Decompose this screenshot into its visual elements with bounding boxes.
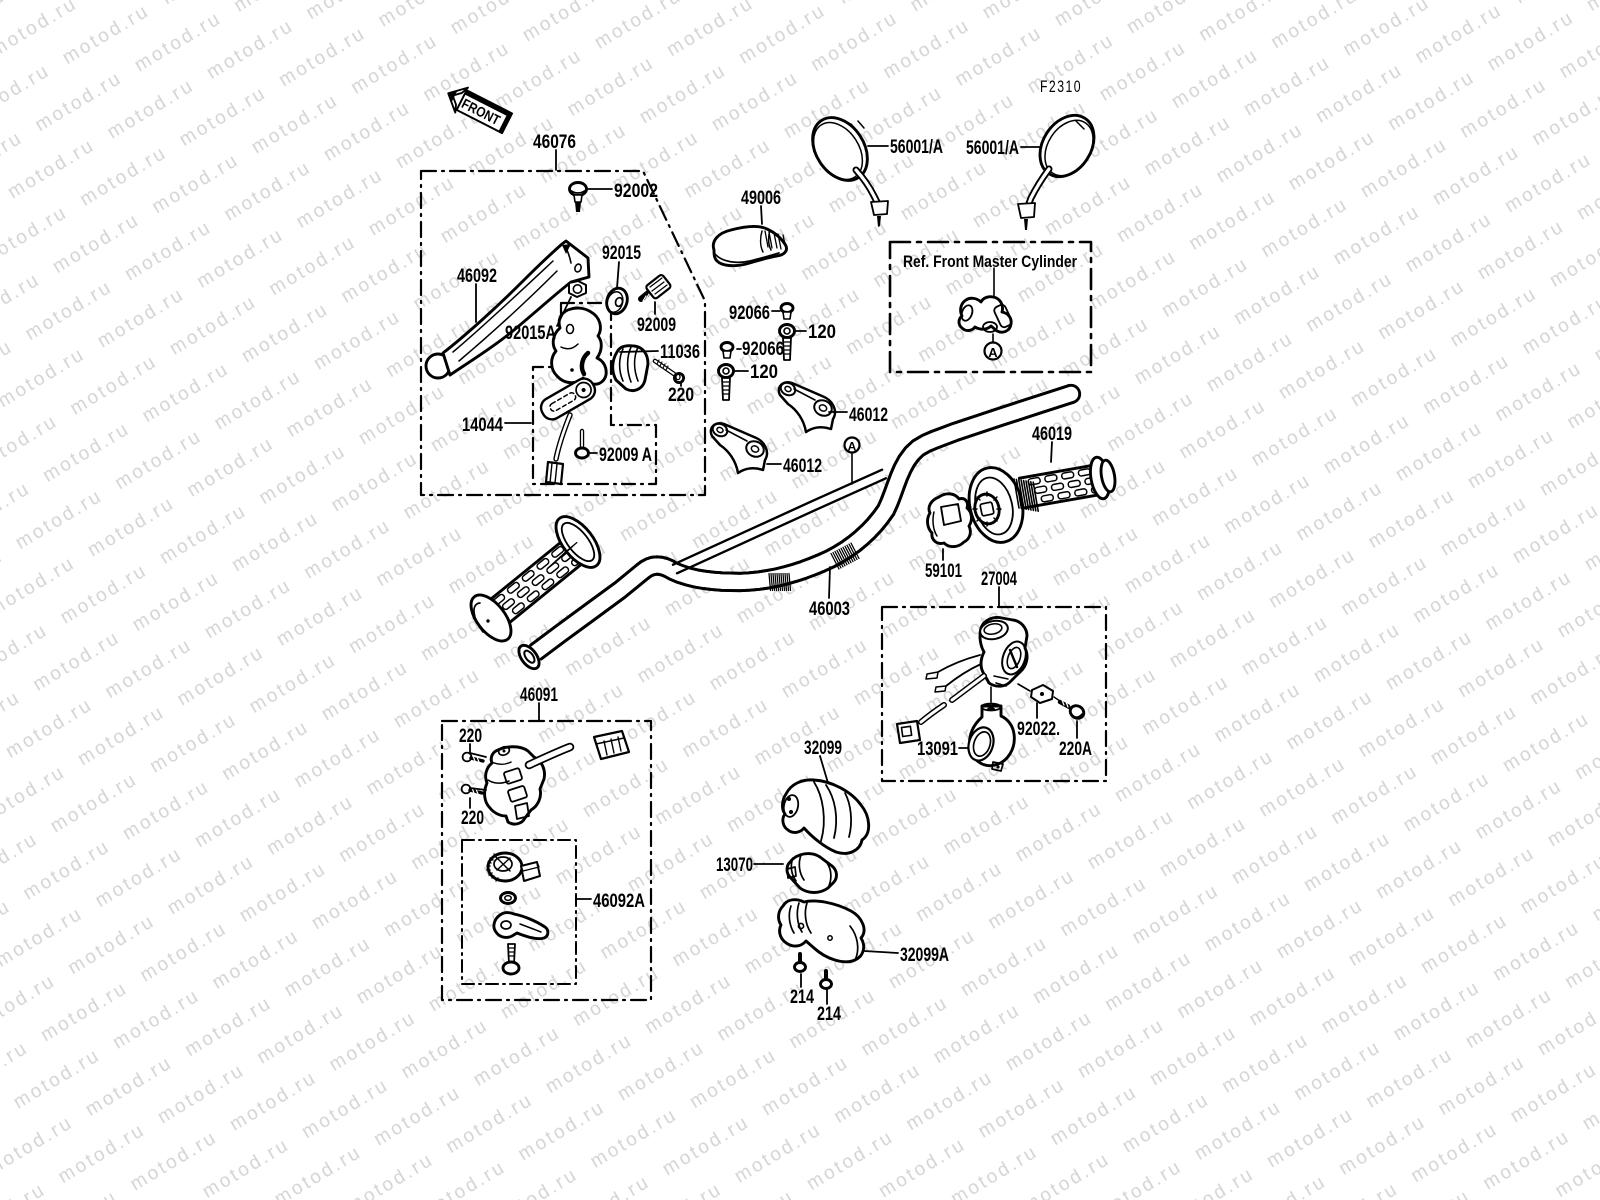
svg-text:14044: 14044 bbox=[462, 415, 503, 436]
svg-text:56001/A: 56001/A bbox=[890, 137, 943, 158]
svg-text:49006: 49006 bbox=[741, 188, 781, 209]
svg-text:214: 214 bbox=[817, 1004, 841, 1025]
svg-text:46092: 46092 bbox=[457, 266, 497, 287]
svg-text:46019: 46019 bbox=[1032, 424, 1072, 445]
svg-text:92009 A: 92009 A bbox=[599, 445, 652, 466]
svg-text:F2310: F2310 bbox=[1040, 77, 1082, 96]
svg-text:220A: 220A bbox=[1059, 739, 1092, 760]
svg-text:92066: 92066 bbox=[729, 303, 770, 324]
svg-text:214: 214 bbox=[790, 987, 814, 1008]
svg-text:46091: 46091 bbox=[520, 685, 558, 706]
svg-text:11036: 11036 bbox=[660, 342, 700, 363]
svg-text:46012: 46012 bbox=[783, 456, 822, 477]
svg-text:220: 220 bbox=[668, 385, 694, 406]
svg-text:120: 120 bbox=[808, 322, 836, 343]
svg-text:13091: 13091 bbox=[917, 739, 958, 760]
svg-text:220: 220 bbox=[459, 726, 482, 747]
svg-text:A: A bbox=[988, 345, 998, 360]
svg-text:56001/A: 56001/A bbox=[966, 138, 1019, 159]
svg-text:46092A: 46092A bbox=[593, 891, 645, 912]
svg-text:120: 120 bbox=[750, 362, 778, 383]
svg-text:27004: 27004 bbox=[981, 569, 1017, 590]
svg-text:32099: 32099 bbox=[804, 738, 842, 759]
svg-text:92002: 92002 bbox=[614, 181, 658, 202]
svg-text:92015: 92015 bbox=[602, 243, 641, 264]
svg-text:46076: 46076 bbox=[533, 132, 576, 153]
svg-text:46003: 46003 bbox=[809, 599, 850, 620]
svg-text:92015A: 92015A bbox=[505, 323, 556, 344]
svg-text:46012: 46012 bbox=[849, 405, 888, 426]
svg-text:220: 220 bbox=[461, 808, 484, 829]
svg-text:92066: 92066 bbox=[742, 339, 784, 360]
svg-text:92009: 92009 bbox=[637, 315, 676, 336]
svg-text:13070: 13070 bbox=[716, 855, 753, 876]
svg-text:59101: 59101 bbox=[925, 561, 962, 582]
svg-text:Ref. Front Master Cylinder: Ref. Front Master Cylinder bbox=[903, 253, 1077, 271]
svg-text:32099A: 32099A bbox=[900, 945, 949, 966]
svg-text:92022.: 92022. bbox=[1017, 719, 1060, 740]
svg-text:A: A bbox=[848, 440, 857, 454]
